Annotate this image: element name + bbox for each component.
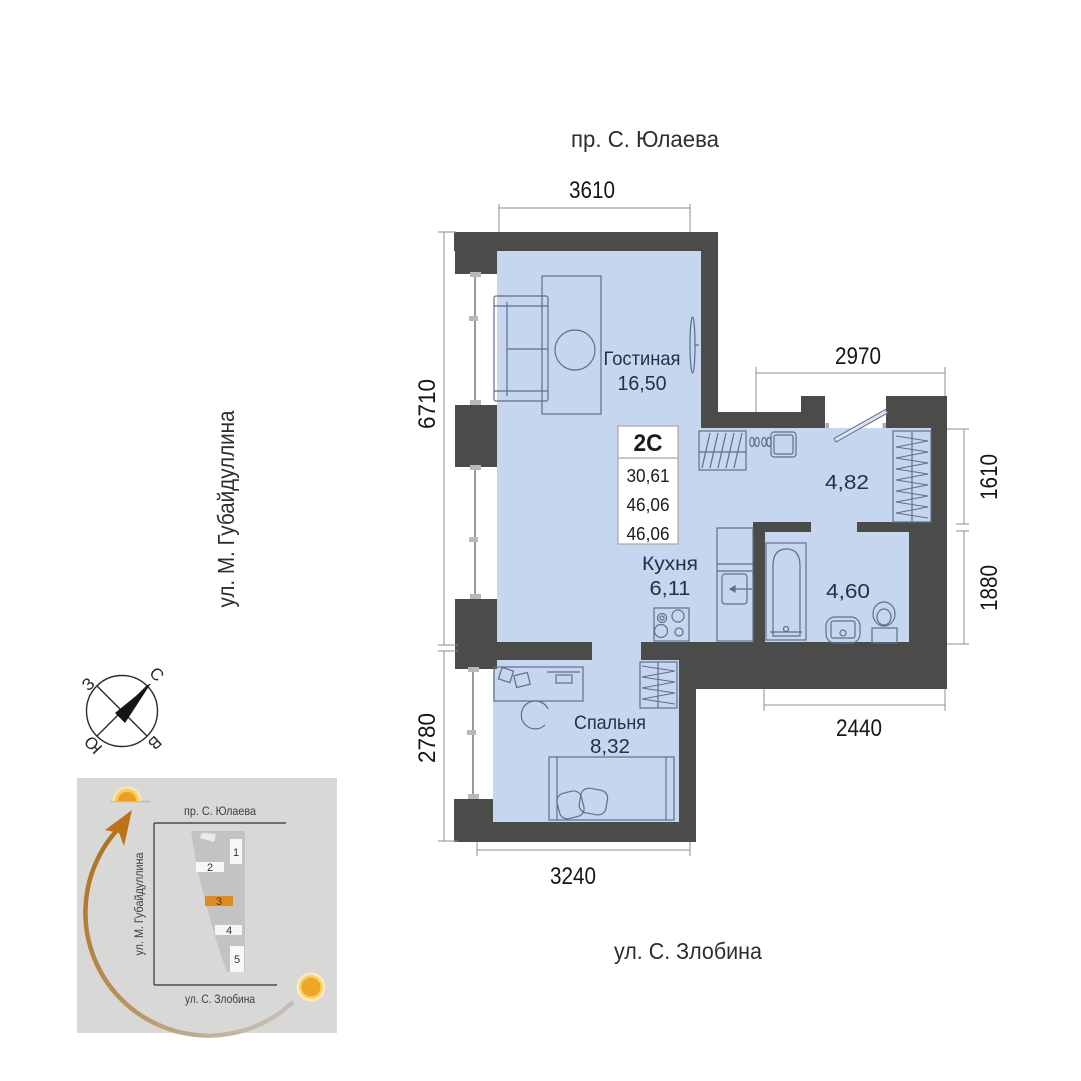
svg-text:5: 5 xyxy=(234,954,240,966)
svg-text:30,61: 30,61 xyxy=(627,465,670,486)
svg-text:ул. С. Злобина: ул. С. Злобина xyxy=(614,938,763,964)
svg-text:пр. С. Юлаева: пр. С. Юлаева xyxy=(571,126,720,152)
svg-text:16,50: 16,50 xyxy=(618,373,667,395)
svg-text:46,06: 46,06 xyxy=(627,494,670,515)
svg-text:Кухня: Кухня xyxy=(642,553,698,575)
svg-text:2: 2 xyxy=(207,862,213,874)
svg-text:2780: 2780 xyxy=(414,713,441,763)
svg-text:2С: 2С xyxy=(634,430,663,457)
svg-text:4,60: 4,60 xyxy=(826,581,870,603)
svg-text:8,32: 8,32 xyxy=(590,736,630,758)
svg-text:ул. М. Губайдуллина: ул. М. Губайдуллина xyxy=(132,852,146,955)
svg-text:ул. М. Губайдуллина: ул. М. Губайдуллина xyxy=(213,410,239,608)
svg-text:2970: 2970 xyxy=(835,343,881,370)
svg-text:ул. С. Злобина: ул. С. Злобина xyxy=(185,992,255,1006)
svg-text:4,82: 4,82 xyxy=(825,472,869,494)
svg-text:4: 4 xyxy=(226,925,232,937)
svg-text:6710: 6710 xyxy=(414,379,441,429)
svg-text:пр. С. Юлаева: пр. С. Юлаева xyxy=(184,804,256,818)
svg-text:1: 1 xyxy=(233,847,239,859)
svg-text:46,06: 46,06 xyxy=(627,523,670,544)
svg-text:Гостиная: Гостиная xyxy=(604,348,681,370)
svg-text:3610: 3610 xyxy=(569,177,615,204)
svg-text:1610: 1610 xyxy=(976,454,1003,500)
svg-text:3: 3 xyxy=(216,896,222,908)
svg-text:2440: 2440 xyxy=(836,715,882,742)
svg-text:1880: 1880 xyxy=(976,565,1003,611)
svg-text:Спальня: Спальня xyxy=(574,712,646,734)
svg-text:6,11: 6,11 xyxy=(650,578,691,600)
svg-text:3240: 3240 xyxy=(550,863,596,890)
